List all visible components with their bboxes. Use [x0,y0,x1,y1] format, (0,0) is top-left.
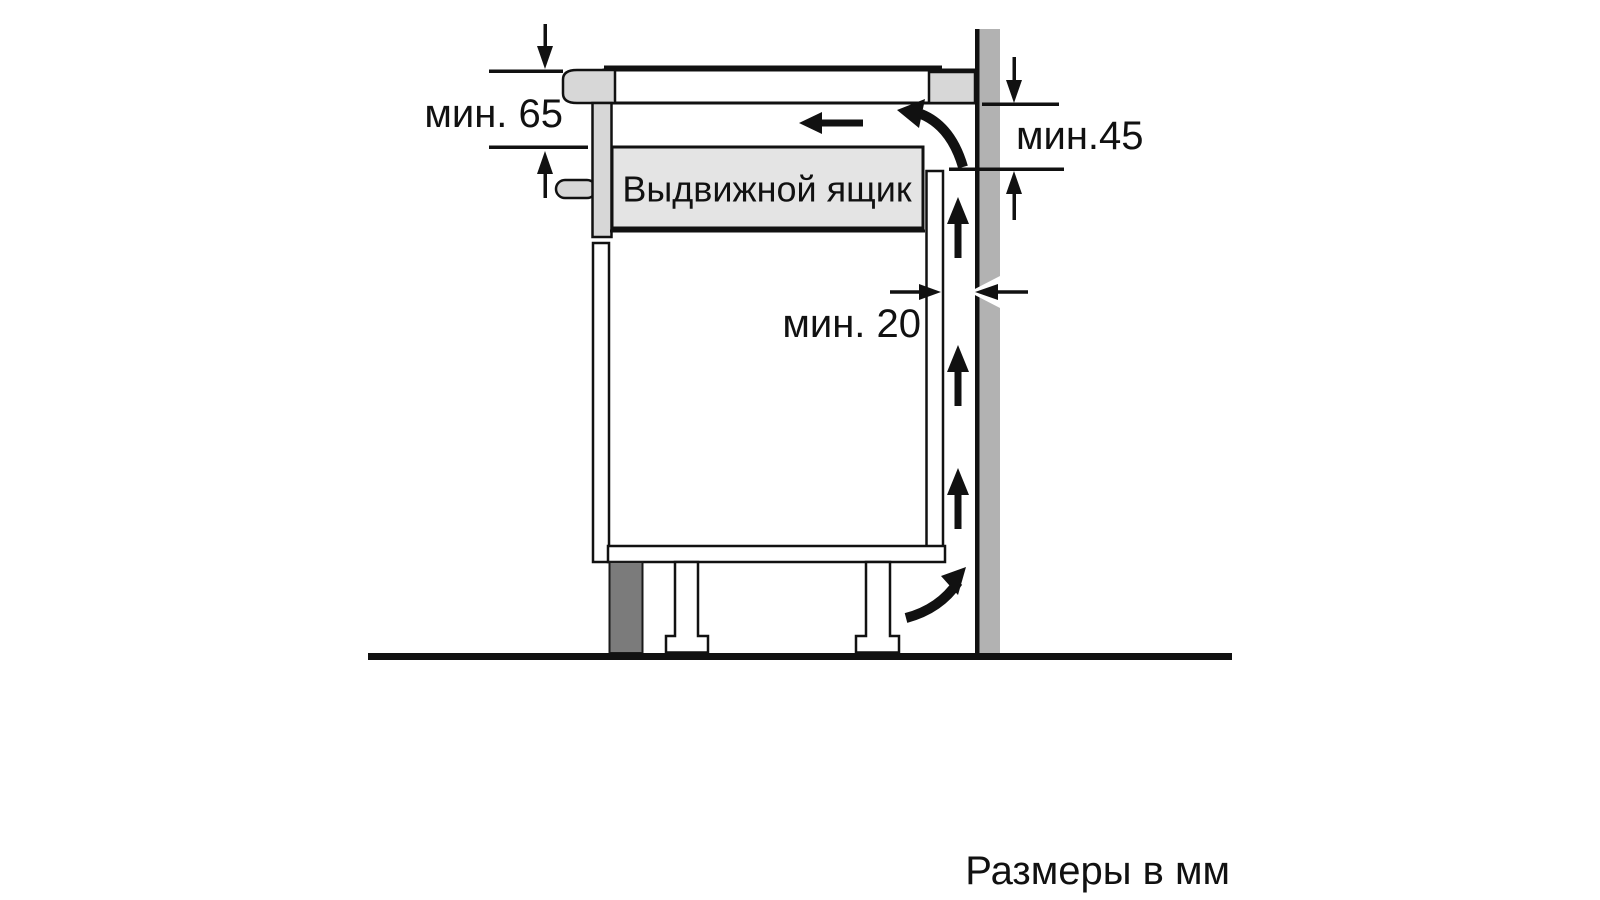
dim20-label: мин. 20 [782,302,921,346]
airflow-left-arrow-icon [799,112,863,134]
airflow-up-arrow-2-icon [947,345,969,406]
dim45-arrow-down-icon [1006,80,1022,103]
installation-diagram: Выдвижной ящик [0,0,1600,900]
dimension-min-65: мин. 65 [424,24,588,198]
floor-line [368,653,1232,660]
dim65-label: мин. 65 [424,92,563,136]
wall-edge-line [975,29,980,653]
worktop-wall-block [929,72,975,103]
airflow-curve-bottom-icon [906,567,966,618]
dim20-left-arrow-shaft [890,290,921,294]
dim45-label: мин.45 [1016,114,1144,158]
dim65-upper-line [489,70,563,74]
airflow-up-arrow-1-icon [947,197,969,258]
cabinet-leg-left [666,562,708,653]
drawer-bottom-line [610,230,925,233]
wall [975,29,1000,653]
dim45-arrow-up-shaft [1013,192,1017,220]
cabinet-bottom-panel [608,546,945,562]
drawer-label: Выдвижной ящик [622,169,911,210]
dim65-arrow-down-icon [537,46,553,69]
dim20-right-arrow-shaft [996,290,1028,294]
dim65-lower-line [489,146,588,150]
cabinet-leg-right [856,562,899,653]
installation-diagram-page: Выдвижной ящик [0,0,1600,900]
units-note: Размеры в мм [965,849,1230,893]
wall-panel [979,29,1000,653]
dim45-arrow-up-icon [1006,171,1022,194]
dim45-lower-line [949,168,1064,172]
plinth [610,562,643,653]
dim45-upper-line [982,103,1059,107]
hob-mounting-frame [593,103,612,237]
dim45-arrow-down-shaft [1013,57,1017,81]
cabinet-back-panel [927,171,944,547]
cabinet-side-panel [593,243,609,562]
dim65-arrow-up-icon [537,151,553,174]
airflow-up-arrow-3-icon [947,468,969,529]
dim65-arrow-up-shaft [544,172,548,198]
fixing-pin [556,180,596,198]
cabinet: Выдвижной ящик [556,66,975,654]
worktop [604,70,975,103]
dim65-arrow-down-shaft [544,24,548,48]
hob-front-trim [563,70,615,103]
